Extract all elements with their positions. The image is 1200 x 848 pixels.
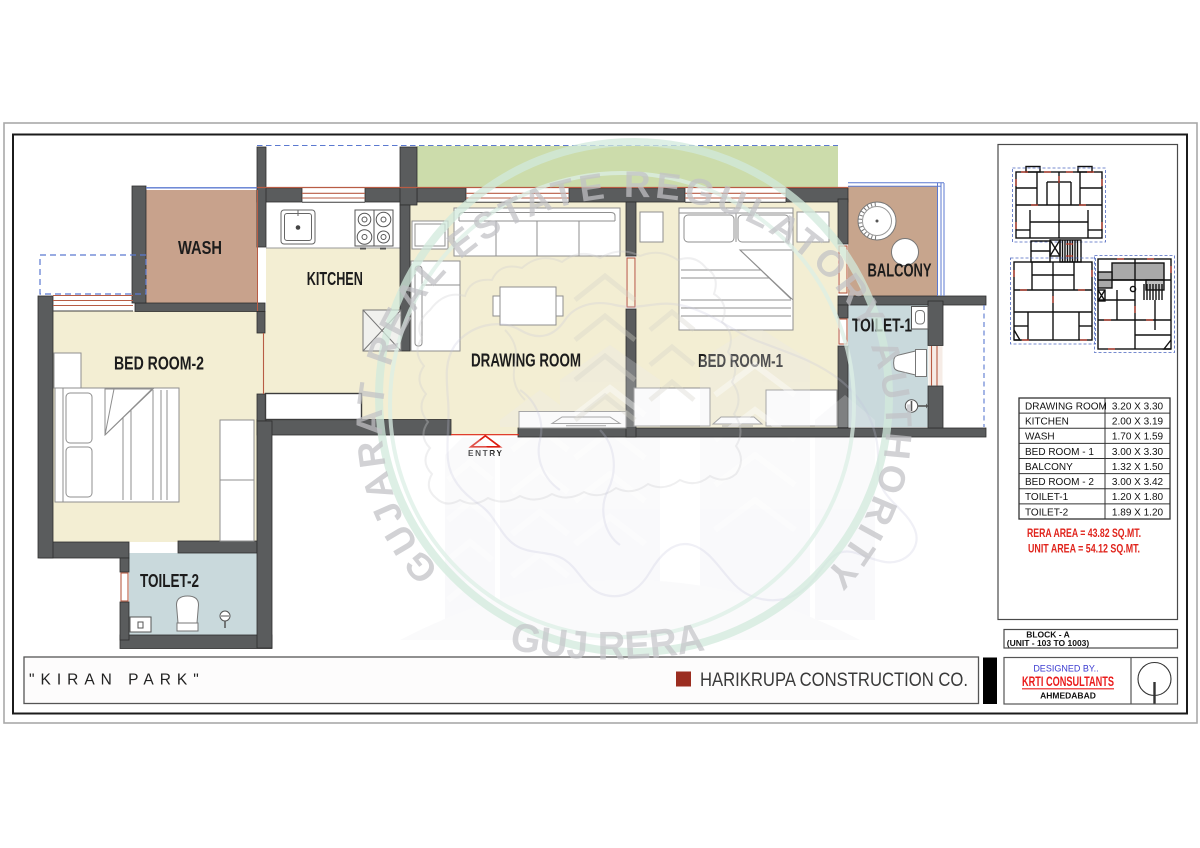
svg-text:RERA AREA = 43.82 SQ.MT.: RERA AREA = 43.82 SQ.MT. <box>1027 526 1141 540</box>
svg-text:TOILET-1: TOILET-1 <box>1025 492 1069 503</box>
svg-text:1.89 X 1.20: 1.89 X 1.20 <box>1112 507 1164 518</box>
svg-text:HARIKRUPA CONSTRUCTION CO.: HARIKRUPA CONSTRUCTION CO. <box>700 670 968 691</box>
svg-text:3.20 X 3.30: 3.20 X 3.30 <box>1112 402 1164 413</box>
svg-text:KITCHEN: KITCHEN <box>307 269 363 289</box>
svg-text:BED ROOM-2: BED ROOM-2 <box>114 354 204 374</box>
svg-text:AHMEDABAD: AHMEDABAD <box>1040 691 1096 701</box>
svg-text:BED ROOM - 2: BED ROOM - 2 <box>1025 477 1094 488</box>
svg-text:(UNIT - 103 TO 1003): (UNIT - 103 TO 1003) <box>1007 638 1090 648</box>
svg-text:TOILET-2: TOILET-2 <box>1025 507 1069 518</box>
svg-text:DRAWING ROOM: DRAWING ROOM <box>1025 402 1107 413</box>
svg-text:WASH: WASH <box>1025 432 1055 443</box>
svg-text:TOILET-2: TOILET-2 <box>140 571 199 591</box>
svg-text:1.20 X 1.80: 1.20 X 1.80 <box>1112 492 1164 503</box>
svg-text:WASH: WASH <box>178 238 222 258</box>
svg-text:BALCONY: BALCONY <box>1025 462 1073 473</box>
svg-text:1.32 X 1.50: 1.32 X 1.50 <box>1112 462 1164 473</box>
svg-text:2.00 X 3.19: 2.00 X 3.19 <box>1112 417 1164 428</box>
svg-text:3.00 X 3.42: 3.00 X 3.42 <box>1112 477 1164 488</box>
svg-text:DESIGNED BY..: DESIGNED BY.. <box>1033 664 1098 674</box>
svg-text:UNIT AREA = 54.12 SQ.MT.: UNIT AREA = 54.12 SQ.MT. <box>1028 542 1140 556</box>
svg-text:1.70 X 1.59: 1.70 X 1.59 <box>1112 432 1164 443</box>
svg-text:BED ROOM - 1: BED ROOM - 1 <box>1025 447 1094 458</box>
svg-text:KITCHEN: KITCHEN <box>1025 417 1069 428</box>
svg-text:DRAWING ROOM: DRAWING ROOM <box>471 351 581 371</box>
svg-text:3.00 X 3.30: 3.00 X 3.30 <box>1112 447 1164 458</box>
svg-text:KRTI CONSULTANTS: KRTI CONSULTANTS <box>1022 674 1114 689</box>
svg-text:BALCONY: BALCONY <box>868 261 932 281</box>
svg-text:"KIRAN PARK": "KIRAN PARK" <box>29 672 205 689</box>
